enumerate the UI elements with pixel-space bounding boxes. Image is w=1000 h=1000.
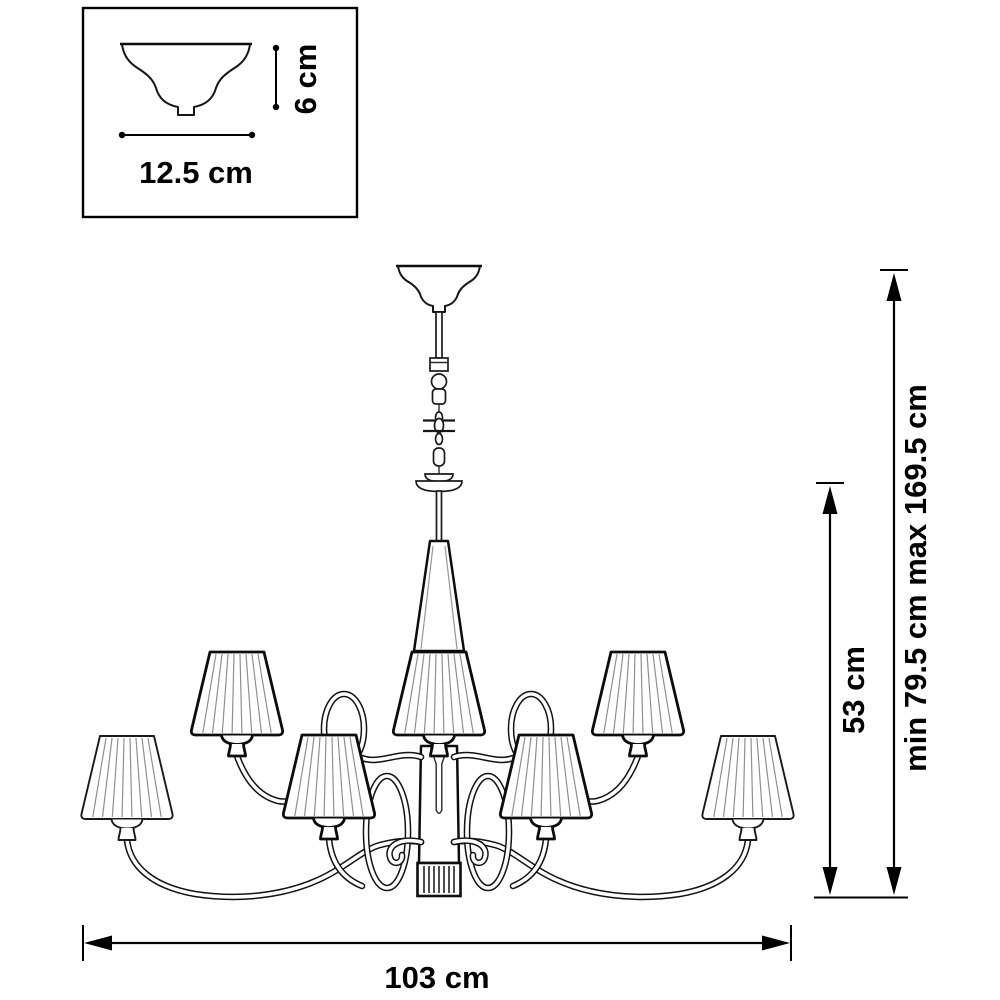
dimension-body-height: 53 cm [816,483,871,895]
body-height-label: 53 cm [836,646,871,734]
arrow-left-icon [84,936,112,951]
shade-far-left [81,736,172,840]
chandelier-dimension-diagram: 6 cm 12.5 cm [0,0,1000,1000]
loop-mid-left [366,776,408,888]
loop-mid-right [467,776,509,888]
chain-cylinder [433,389,446,404]
chain-coupler [430,358,448,371]
inset-width-dim-dot-left [119,132,125,138]
arrow-down-icon [887,867,902,895]
overall-height-label: min 79.5 cm max 169.5 cm [898,384,933,772]
shade-upper-right [592,652,683,756]
ribbed-finial [418,863,461,896]
stem-cup [416,474,462,492]
stem-cone [414,541,464,651]
suspension-chain [423,312,455,474]
width-label: 103 cm [384,960,489,995]
ceiling-canopy [396,266,482,312]
arrow-up-icon [823,486,838,514]
inset-box: 6 cm 12.5 cm [83,8,357,217]
diagram-stage: 6 cm 12.5 cm [0,0,1000,1000]
dimension-width: 103 cm [83,925,791,995]
shade-upper-left [191,652,282,756]
swivel-ball [432,374,447,389]
center-stem [414,491,464,651]
inset-width-label: 12.5 cm [139,155,253,190]
arrow-up-icon [887,273,902,301]
chain-capsule [434,448,445,466]
shade-central [393,652,484,756]
inset-width-dim-dot-right [249,132,255,138]
dimension-overall-height: min 79.5 cm max 169.5 cm [814,270,933,898]
shade-mid-left [283,735,374,839]
center-column [419,746,459,863]
chain-link-2 [436,434,443,445]
inset-height-label: 6 cm [288,44,323,115]
shade-far-right [702,736,793,840]
suspension-rod [436,312,442,358]
arrow-right-icon [762,936,790,951]
inset-height-dim-dot-top [273,45,279,51]
shade-mid-right [500,735,591,839]
arrow-down-icon [823,867,838,895]
inset-height-dim-dot-bottom [273,104,279,110]
